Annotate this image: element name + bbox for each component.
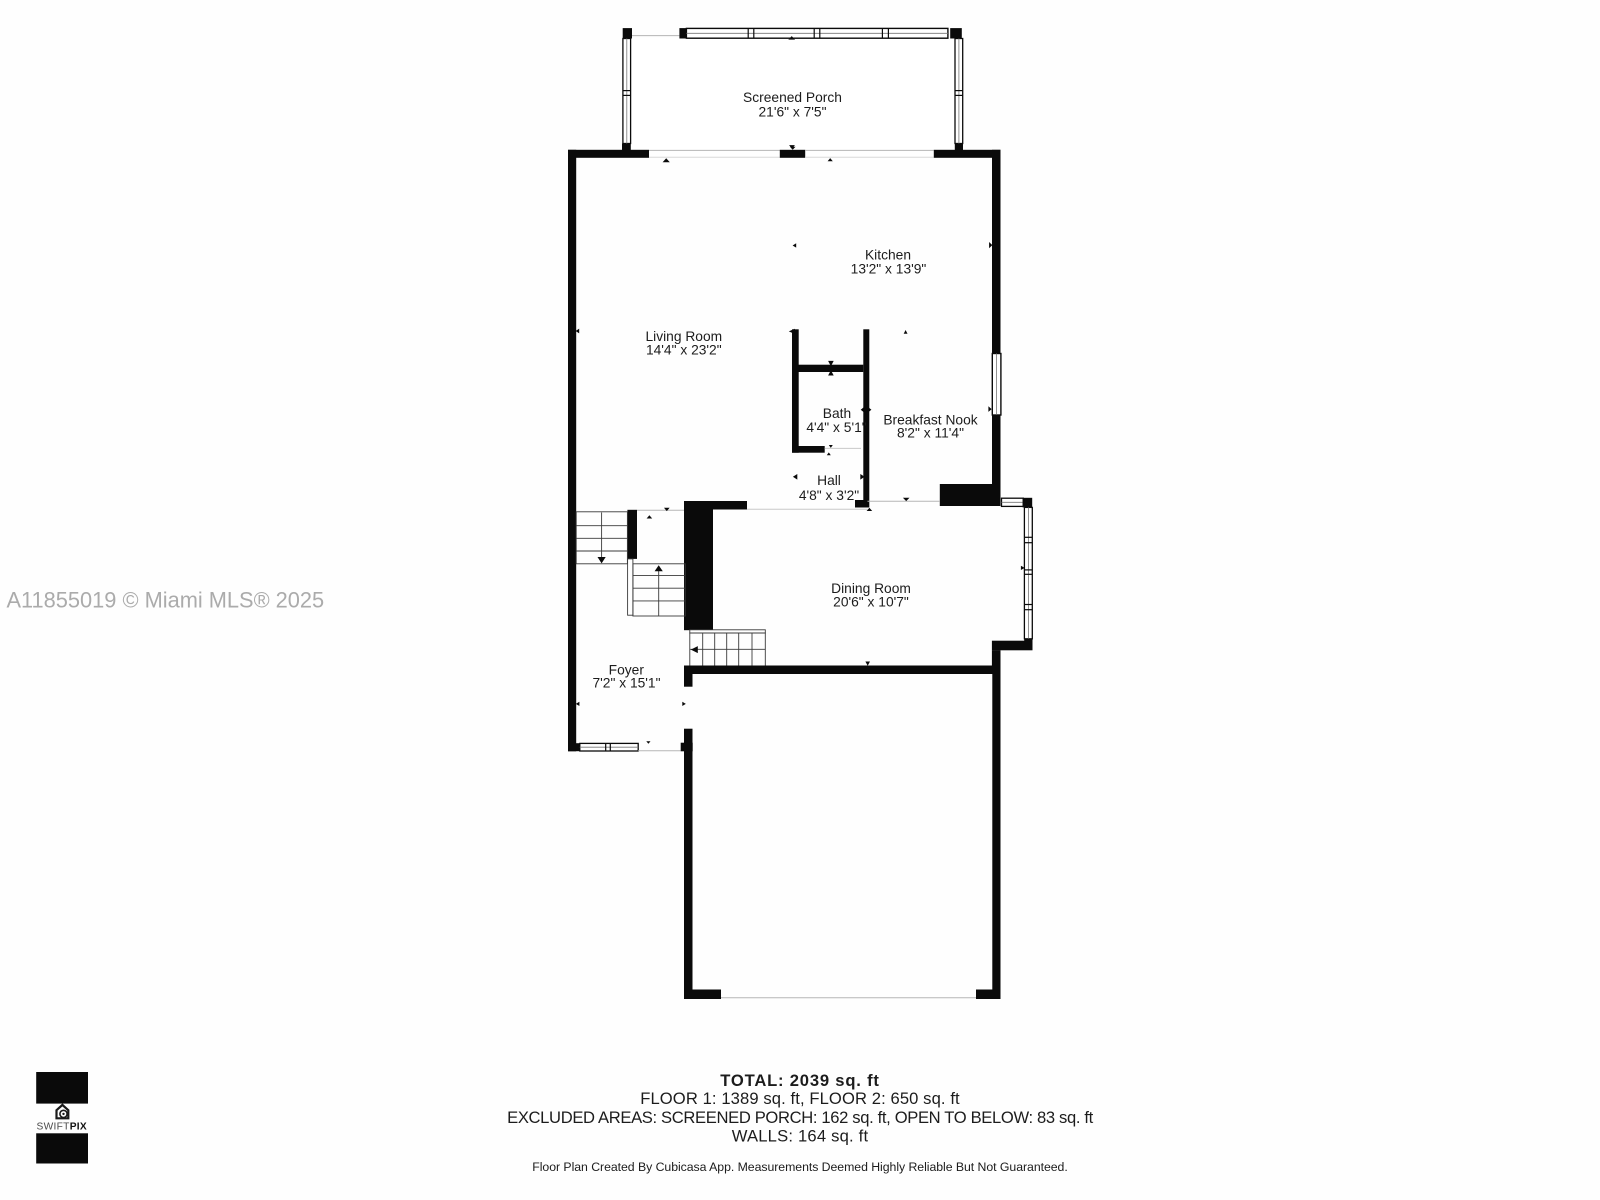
svg-text:Floor Plan Created By Cubicasa: Floor Plan Created By Cubicasa App. Meas…	[532, 1160, 1067, 1174]
svg-text:4'4" x 5'1": 4'4" x 5'1"	[806, 420, 866, 435]
svg-text:FLOOR 1: 1389 sq. ft, FLOOR 2:: FLOOR 1: 1389 sq. ft, FLOOR 2: 650 sq. f…	[640, 1089, 960, 1108]
svg-text:8'2" x 11'4": 8'2" x 11'4"	[897, 425, 964, 440]
svg-text:A11855019 © Miami MLS® 2025: A11855019 © Miami MLS® 2025	[7, 588, 325, 613]
svg-text:WALLS: 164 sq. ft: WALLS: 164 sq. ft	[732, 1127, 869, 1146]
svg-text:Hall: Hall	[817, 473, 841, 488]
svg-text:14'4" x 23'2": 14'4" x 23'2"	[646, 342, 722, 357]
svg-text:SWIFTPIX: SWIFTPIX	[37, 1122, 88, 1133]
svg-text:TOTAL: 2039 sq. ft: TOTAL: 2039 sq. ft	[720, 1071, 879, 1090]
svg-text:20'6" x 10'7": 20'6" x 10'7"	[833, 595, 909, 610]
svg-text:Screened Porch: Screened Porch	[743, 90, 842, 105]
svg-text:4'8" x 3'2": 4'8" x 3'2"	[799, 488, 859, 503]
svg-text:13'2" x 13'9": 13'2" x 13'9"	[851, 261, 927, 276]
svg-text:7'2" x 15'1": 7'2" x 15'1"	[593, 676, 661, 691]
svg-text:21'6" x 7'5": 21'6" x 7'5"	[759, 105, 827, 120]
svg-text:Bath: Bath	[823, 406, 851, 421]
svg-text:EXCLUDED AREAS: SCREENED PORCH: EXCLUDED AREAS: SCREENED PORCH: 162 sq. …	[507, 1108, 1094, 1127]
